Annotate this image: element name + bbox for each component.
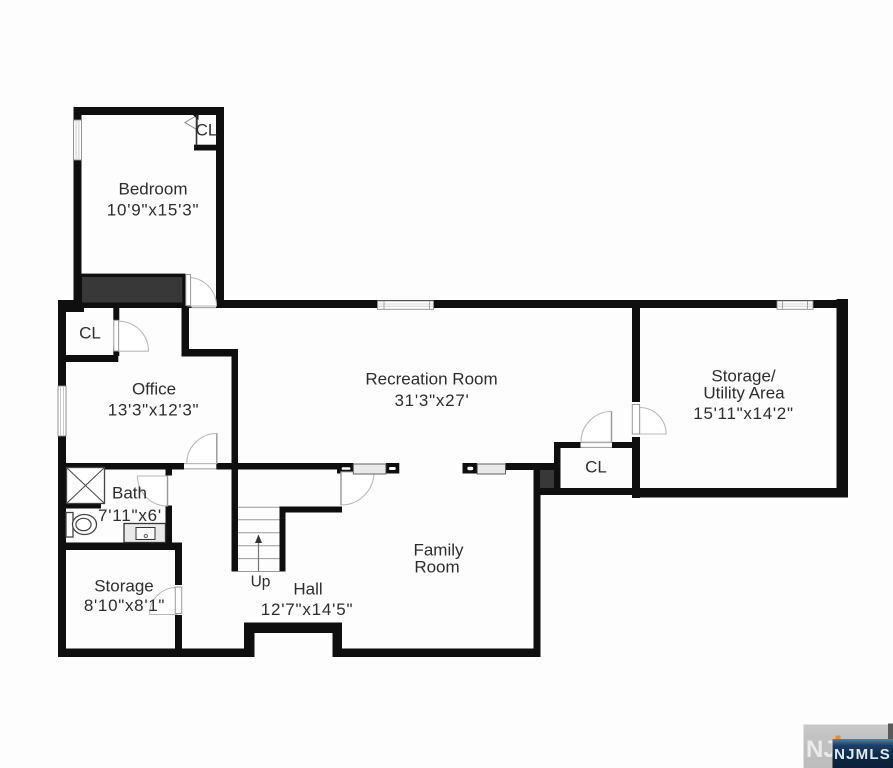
svg-text:Up: Up bbox=[251, 574, 271, 591]
svg-text:7'11"x6': 7'11"x6' bbox=[98, 506, 162, 525]
svg-text:Storage: Storage bbox=[94, 577, 154, 596]
svg-text:31'3"x27': 31'3"x27' bbox=[394, 391, 469, 410]
svg-text:13'3"x12'3": 13'3"x12'3" bbox=[108, 401, 200, 420]
svg-text:CL: CL bbox=[585, 458, 607, 477]
svg-text:Recreation Room: Recreation Room bbox=[365, 370, 497, 389]
svg-text:10'9"x15'3": 10'9"x15'3" bbox=[107, 201, 200, 220]
svg-text:Utility Area: Utility Area bbox=[703, 384, 785, 403]
svg-text:12'7"x14'5": 12'7"x14'5" bbox=[261, 600, 354, 619]
svg-text:Bath: Bath bbox=[112, 484, 147, 503]
svg-text:15'11"x14'2": 15'11"x14'2" bbox=[693, 404, 793, 423]
svg-text:Bedroom: Bedroom bbox=[119, 180, 188, 199]
svg-text:CL: CL bbox=[196, 121, 218, 140]
svg-text:Office: Office bbox=[132, 380, 176, 399]
svg-text:NJMLS: NJMLS bbox=[834, 746, 891, 763]
svg-text:NJ: NJ bbox=[806, 736, 837, 763]
svg-text:Room: Room bbox=[414, 558, 459, 577]
svg-text:CL: CL bbox=[79, 324, 101, 343]
svg-text:8'10"x8'1": 8'10"x8'1" bbox=[84, 596, 165, 615]
svg-text:Hall: Hall bbox=[293, 580, 322, 599]
